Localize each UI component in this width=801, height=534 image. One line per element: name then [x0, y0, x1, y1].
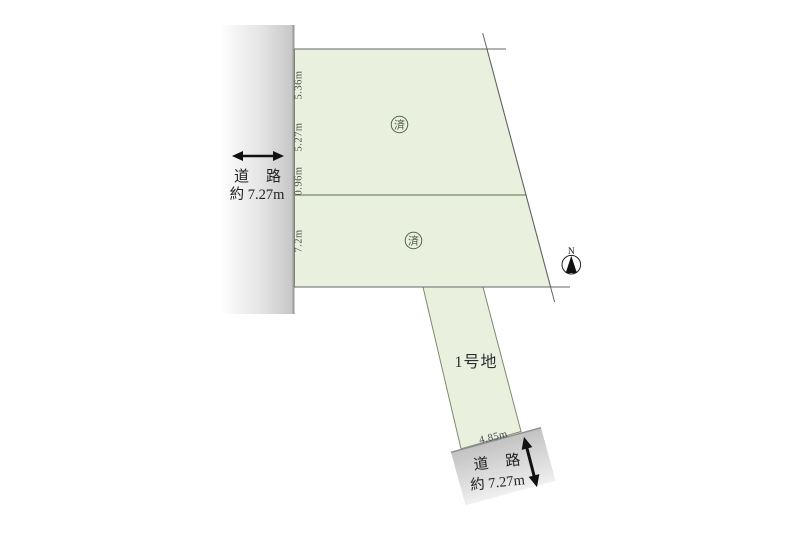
flag-plot-label: 1号地	[454, 353, 497, 371]
measurement-seg4: 7.2m	[294, 229, 305, 252]
measurement-seg3: 0.96m	[294, 166, 305, 195]
left-road-width-label: 約 7.27m	[230, 186, 285, 203]
plot-map-canvas: 道 路 約 7.27m 5.36m 5.27m 0.96m 7.2m 済 済 1…	[0, 0, 801, 534]
left-road-name-label: 道 路	[234, 168, 282, 185]
stamp-text: 済	[408, 234, 419, 248]
measurement-seg1: 5.36m	[294, 70, 305, 99]
left-road: 道 路 約 7.27m	[222, 25, 294, 314]
compass: N	[562, 247, 581, 274]
measurement-seg2: 5.27m	[294, 122, 305, 151]
compass-north-label: N	[568, 247, 575, 257]
land-plot-map: 道 路 約 7.27m 5.36m 5.27m 0.96m 7.2m 済 済 1…	[0, 0, 801, 534]
plot-upper	[295, 49, 527, 195]
stamp-text: 済	[394, 118, 405, 132]
plot-lower	[295, 195, 551, 287]
